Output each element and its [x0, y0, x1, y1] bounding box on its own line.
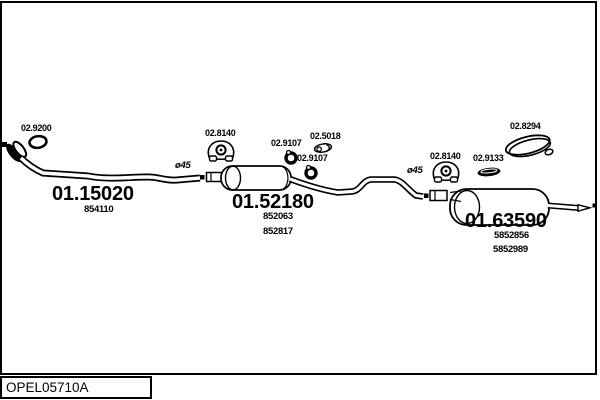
diagram-code: OPEL05710A	[6, 380, 89, 395]
oe-number-rear-2: 5852989	[493, 245, 528, 255]
part-ref-hanger-rear: 02.8140	[430, 152, 460, 161]
oe-number-rear-1: 5852856	[494, 231, 529, 241]
tailpipe-tip	[578, 205, 590, 211]
part-ref-trim-ring: 02.8294	[510, 122, 540, 131]
pipe-clamp-icon	[314, 143, 332, 154]
mid-silencer-drawing	[221, 166, 291, 190]
oe-number-mid-2: 852817	[263, 227, 293, 237]
rubber-hanger-icon	[433, 162, 458, 182]
part-ref-front-pipe: 01.15020	[52, 184, 134, 204]
part-ref-mid-silencer: 01.52180	[232, 192, 314, 212]
pipe-coupler	[430, 191, 447, 201]
diameter-label-rear: ø45	[407, 166, 422, 176]
diameter-label-front: ø45	[175, 161, 190, 171]
joint-dot	[200, 175, 205, 180]
diagram-code-box: OPEL05710A	[0, 376, 152, 399]
tailpipe-trim-ring-icon	[504, 132, 554, 161]
oe-number-mid-1: 852063	[263, 212, 293, 222]
seal-ring-icon	[306, 166, 316, 179]
part-ref-clamp-mid: 02.5018	[310, 132, 340, 141]
gasket-ring-icon	[29, 135, 47, 149]
seal-ring-icon	[286, 151, 296, 164]
mount-dot	[593, 204, 597, 208]
joint-dot	[424, 194, 429, 199]
part-ref-seal-ring-upper: 02.9107	[271, 139, 301, 148]
band-clamp-icon	[477, 167, 501, 178]
part-ref-hanger-mid: 02.8140	[205, 129, 235, 138]
pipe-coupler	[207, 173, 222, 182]
part-ref-front-gasket: 02.9200	[21, 124, 51, 133]
rubber-hanger-icon	[208, 141, 233, 161]
exhaust-parts-diagram: 02.9200 01.15020 854110 ø45 02.8140 02.9…	[0, 0, 600, 400]
part-ref-rear-silencer: 01.63590	[465, 211, 547, 231]
oe-number-front-pipe: 854110	[84, 205, 113, 215]
part-ref-clamp-rear: 02.9133	[473, 154, 503, 163]
part-ref-seal-ring-lower: 02.9107	[297, 154, 327, 163]
